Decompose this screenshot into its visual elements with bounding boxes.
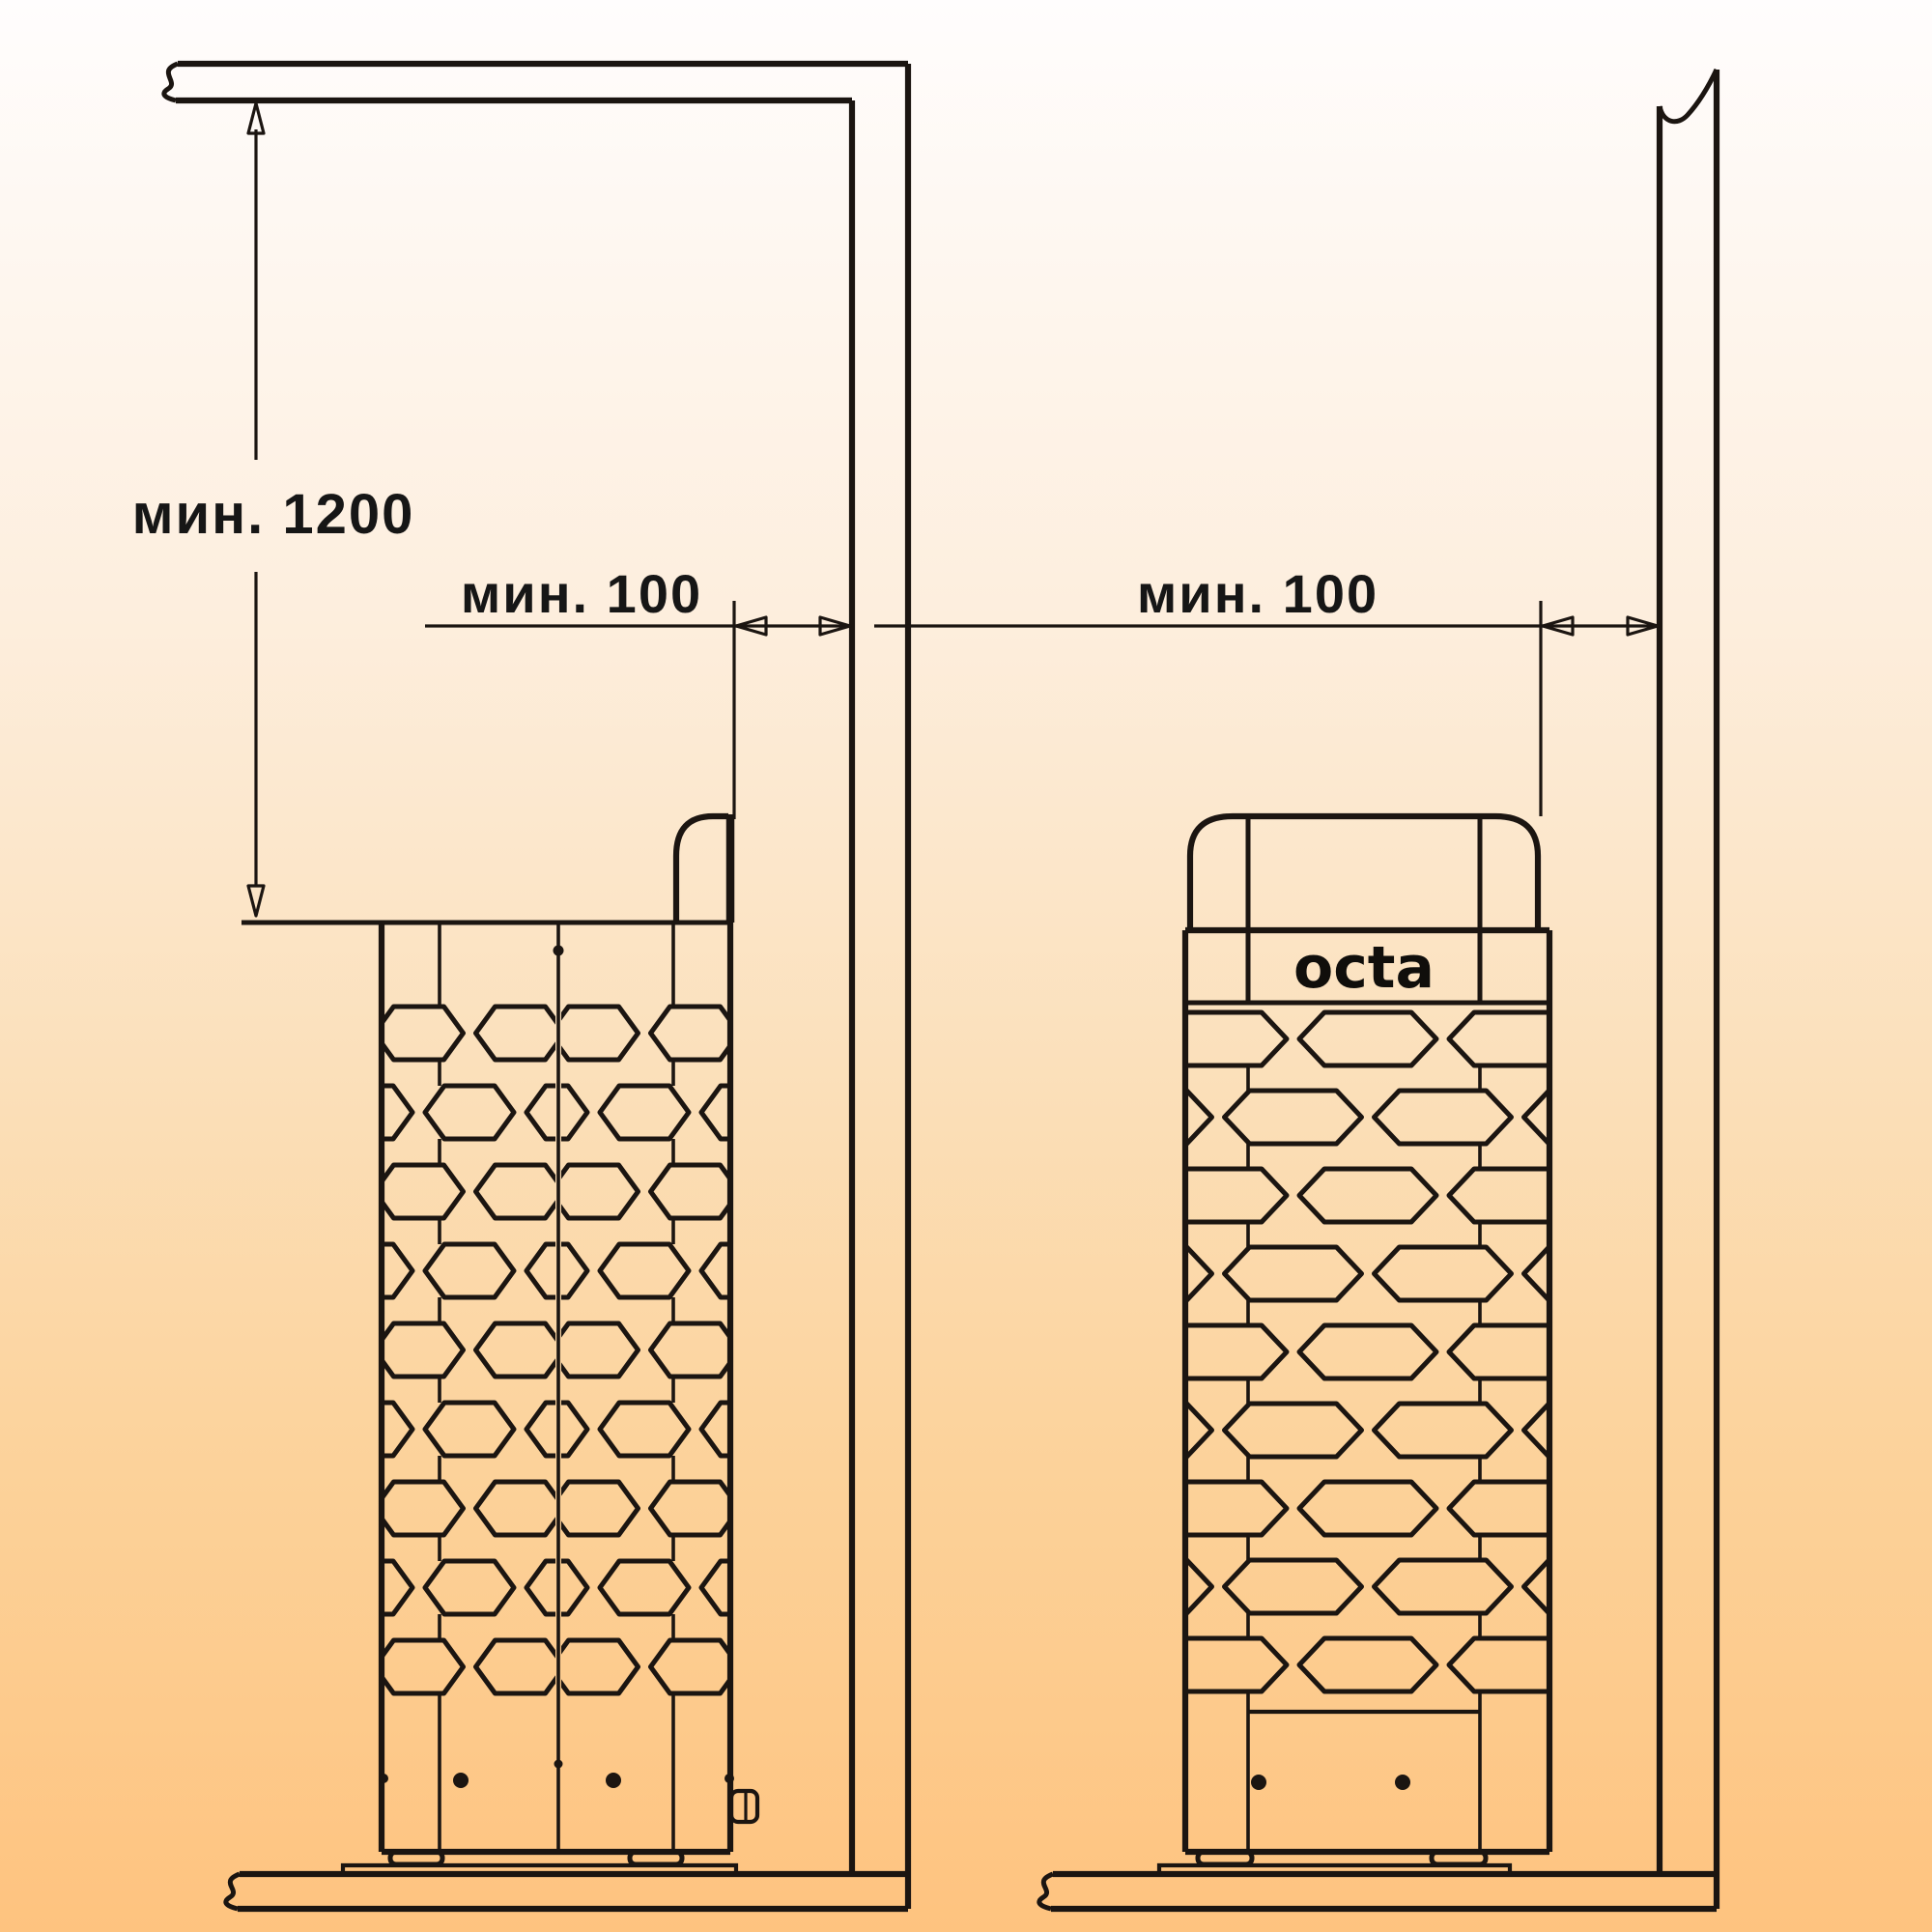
diagram-canvas: мин. 1200 мин. 100	[0, 0, 1932, 1932]
screw-dot	[379, 1774, 388, 1783]
installation-clearance-diagram: мин. 1200 мин. 100	[0, 0, 1932, 1932]
seam-rivet-dot	[554, 1760, 563, 1769]
screw-dot	[1395, 1775, 1410, 1790]
min-height-label: мин. 1200	[132, 483, 415, 546]
screw-dot	[453, 1773, 469, 1788]
brand-logo: octa	[1293, 934, 1435, 1002]
screw-dot	[1251, 1775, 1266, 1790]
min-gap-right-label: мин. 100	[1137, 563, 1378, 624]
screw-dot	[606, 1773, 621, 1788]
screw-dot	[724, 1774, 734, 1783]
gradient-background	[0, 0, 1932, 1932]
min-gap-left-label: мин. 100	[461, 563, 702, 624]
seam-rivet-dot	[554, 946, 564, 956]
